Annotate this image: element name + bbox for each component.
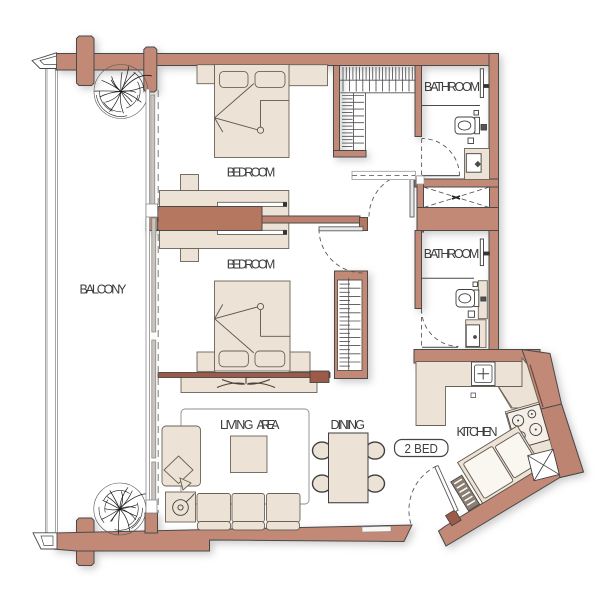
svg-text:BALCONY: BALCONY bbox=[80, 283, 128, 297]
svg-text:BATHROOM: BATHROOM bbox=[424, 247, 480, 261]
svg-text:DINING: DINING bbox=[330, 418, 365, 432]
svg-text:BEDROOM: BEDROOM bbox=[227, 257, 276, 271]
svg-text:2 BED: 2 BED bbox=[404, 442, 438, 456]
svg-text:BATHROOM: BATHROOM bbox=[424, 80, 480, 94]
svg-text:LIVING: LIVING bbox=[220, 418, 254, 432]
svg-text:KITCHEN: KITCHEN bbox=[457, 425, 498, 439]
svg-text:AREA: AREA bbox=[257, 418, 281, 432]
svg-text:BEDROOM: BEDROOM bbox=[227, 165, 276, 179]
